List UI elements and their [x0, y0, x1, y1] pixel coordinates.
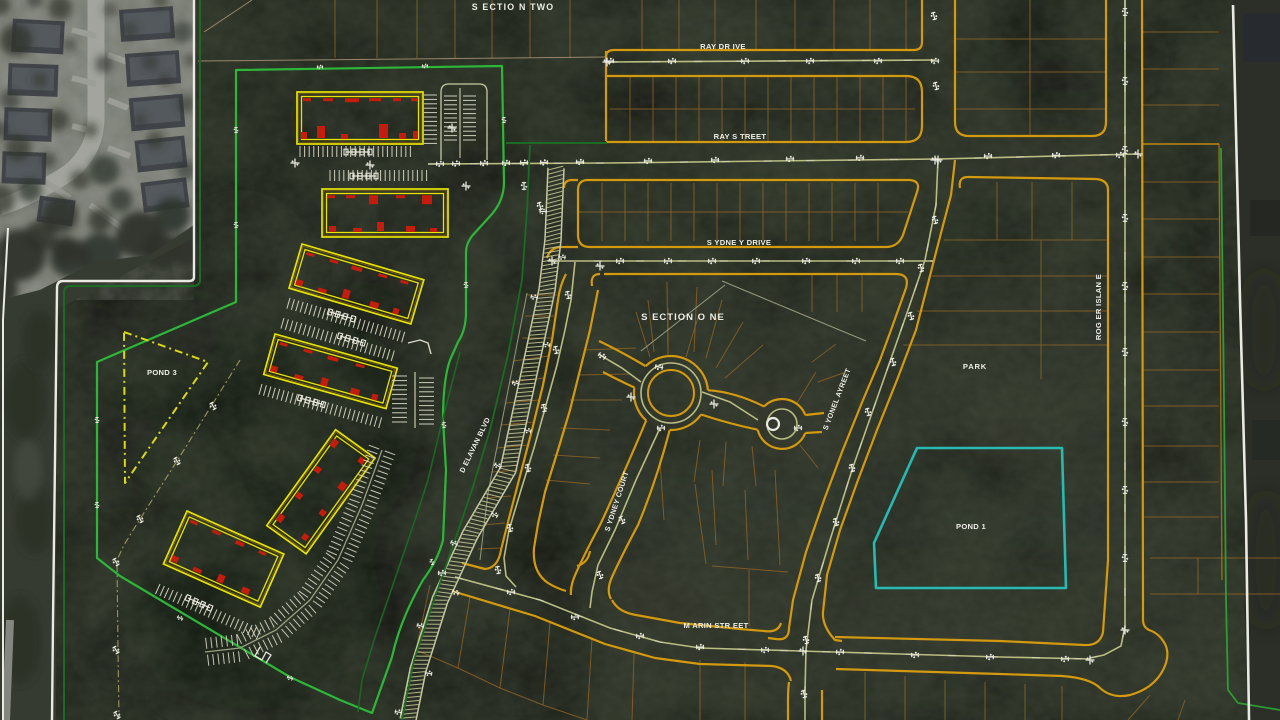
svg-text:POND 1: POND 1 [956, 522, 987, 531]
svg-text:ROG ER ISLAN E: ROG ER ISLAN E [1094, 274, 1103, 340]
svg-text:S YDNE Y DRIVE: S YDNE Y DRIVE [707, 238, 772, 247]
svg-text:S ECTION O NE: S ECTION O NE [641, 312, 725, 323]
svg-text:POND 3: POND 3 [147, 368, 177, 377]
svg-text:PARK: PARK [963, 362, 987, 371]
svg-text:RAY DR IVE: RAY DR IVE [700, 42, 746, 51]
svg-text:M ARIN STR EET: M ARIN STR EET [683, 621, 748, 630]
svg-text:S ECTIO N TWO: S ECTIO N TWO [472, 2, 555, 12]
svg-text:RAY S TREET: RAY S TREET [714, 132, 767, 141]
